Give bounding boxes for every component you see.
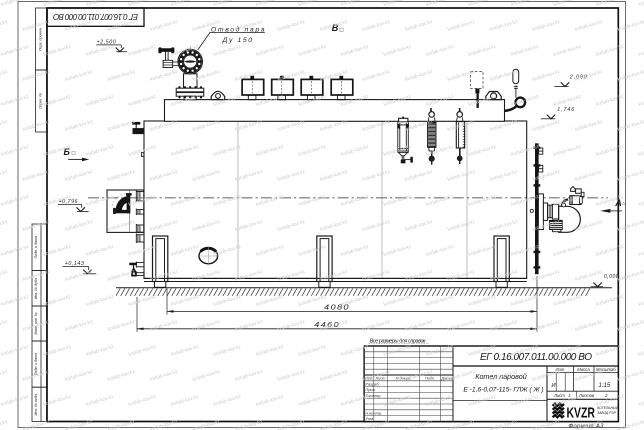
svg-text:Инв. № подл.: Инв. № подл.	[34, 393, 38, 415]
svg-text:kotlab-ksv.kz: kotlab-ksv.kz	[574, 19, 604, 33]
svg-text:1,746: 1,746	[557, 107, 574, 113]
svg-text:kotlab-ksv.kz: kotlab-ksv.kz	[595, 144, 625, 158]
svg-text:kotlab-ksv.kz: kotlab-ksv.kz	[468, 44, 498, 58]
svg-text:kotlab-ksv.kz: kotlab-ksv.kz	[532, 19, 562, 33]
svg-text:kotlab-ksv.kz: kotlab-ksv.kz	[234, 419, 264, 430]
svg-text:Перв. примен.: Перв. примен.	[39, 27, 43, 51]
svg-text:kotlab-ksv.kz: kotlab-ksv.kz	[128, 94, 158, 108]
svg-text:kotlab-ksv.kz: kotlab-ksv.kz	[319, 69, 349, 83]
svg-text:Ду 150: Ду 150	[222, 37, 253, 44]
svg-text:kotlab-ksv.kz: kotlab-ksv.kz	[362, 69, 392, 83]
svg-text:kotlab-ksv.kz: kotlab-ksv.kz	[213, 294, 243, 308]
svg-text:kotlab-ksv.kz: kotlab-ksv.kz	[340, 294, 370, 308]
svg-text:kotlab-ksv.kz: kotlab-ksv.kz	[128, 294, 158, 308]
svg-text:kotlab-ksv.kz: kotlab-ksv.kz	[298, 344, 328, 358]
svg-text:kotlab-ksv.kz: kotlab-ksv.kz	[0, 144, 30, 158]
svg-text:kotlab-ksv.kz: kotlab-ksv.kz	[447, 69, 477, 83]
svg-text:kotlab-ksv.kz: kotlab-ksv.kz	[277, 319, 307, 333]
svg-text:kotlab-ksv.kz: kotlab-ksv.kz	[425, 294, 455, 308]
svg-text:kotlab-ksv.kz: kotlab-ksv.kz	[0, 319, 9, 333]
svg-text:kotlab-ksv.kz: kotlab-ksv.kz	[192, 369, 222, 383]
svg-text:KVZR: KVZR	[567, 406, 596, 422]
svg-text:kotlab-ksv.kz: kotlab-ksv.kz	[340, 44, 370, 58]
svg-text:kotlab-ksv.kz: kotlab-ksv.kz	[107, 369, 137, 383]
svg-text:kotlab-ksv.kz: kotlab-ksv.kz	[298, 44, 328, 58]
svg-text:kotlab-ksv.kz: kotlab-ksv.kz	[277, 19, 307, 33]
svg-text:kotlab-ksv.kz: kotlab-ksv.kz	[362, 19, 392, 33]
svg-text:kotlab-ksv.kz: kotlab-ksv.kz	[617, 419, 644, 430]
svg-text:kotlab-ksv.kz: kotlab-ksv.kz	[64, 69, 94, 83]
svg-text:kotlab-ksv.kz: kotlab-ksv.kz	[0, 19, 9, 33]
svg-text:kotlab-ksv.kz: kotlab-ksv.kz	[64, 319, 94, 333]
svg-text:kotlab-ksv.kz: kotlab-ksv.kz	[510, 294, 540, 308]
svg-text:kotlab-ksv.kz: kotlab-ksv.kz	[64, 169, 94, 183]
svg-text:kotlab-ksv.kz: kotlab-ksv.kz	[0, 94, 30, 108]
svg-text:kotlab-ksv.kz: kotlab-ksv.kz	[107, 69, 137, 83]
svg-text:kotlab-ksv.kz: kotlab-ksv.kz	[85, 344, 115, 358]
svg-text:kotlab-ksv.kz: kotlab-ksv.kz	[574, 169, 604, 183]
svg-text:kotlab-ksv.kz: kotlab-ksv.kz	[0, 219, 9, 233]
svg-text:kotlab-ksv.kz: kotlab-ksv.kz	[234, 319, 264, 333]
svg-text:kotlab-ksv.kz: kotlab-ksv.kz	[383, 294, 413, 308]
svg-text:kotlab-ksv.kz: kotlab-ksv.kz	[107, 169, 137, 183]
svg-text:kotlab-ksv.kz: kotlab-ksv.kz	[574, 69, 604, 83]
svg-text:kotlab-ksv.kz: kotlab-ksv.kz	[617, 219, 644, 233]
svg-text:kotlab-ksv.kz: kotlab-ksv.kz	[213, 44, 243, 58]
svg-text:kotlab-ksv.kz: kotlab-ksv.kz	[638, 194, 644, 208]
svg-text:kotlab-ksv.kz: kotlab-ksv.kz	[85, 394, 115, 408]
svg-text:kotlab-ksv.kz: kotlab-ksv.kz	[107, 119, 137, 133]
svg-text:kotlab-ksv.kz: kotlab-ksv.kz	[0, 344, 30, 358]
svg-text:kotlab-ksv.kz: kotlab-ksv.kz	[64, 119, 94, 133]
svg-text:kotlab-ksv.kz: kotlab-ksv.kz	[638, 244, 644, 258]
svg-text:+2,500: +2,500	[97, 40, 116, 46]
svg-text:kotlab-ksv.kz: kotlab-ksv.kz	[0, 244, 30, 258]
svg-text:Разраб.: Разраб.	[365, 381, 379, 386]
svg-text:kotlab-ksv.kz: kotlab-ksv.kz	[277, 369, 307, 383]
svg-text:kotlab-ksv.kz: kotlab-ksv.kz	[638, 394, 644, 408]
svg-text:Масса: Масса	[577, 367, 590, 372]
svg-text:kotlab-ksv.kz: kotlab-ksv.kz	[255, 344, 285, 358]
svg-text:kotlab-ksv.kz: kotlab-ksv.kz	[553, 244, 583, 258]
svg-text:Н.контр.: Н.контр.	[365, 410, 382, 415]
svg-text:Подп.: Подп.	[425, 376, 435, 380]
svg-text:kotlab-ksv.kz: kotlab-ksv.kz	[617, 69, 644, 83]
svg-text:kotlab-ksv.kz: kotlab-ksv.kz	[107, 319, 137, 333]
svg-text:kotlab-ksv.kz: kotlab-ksv.kz	[255, 44, 285, 58]
svg-text:kotlab-ksv.kz: kotlab-ksv.kz	[128, 394, 158, 408]
svg-text:kotlab-ksv.kz: kotlab-ksv.kz	[85, 44, 115, 58]
svg-text:kotlab-ksv.kz: kotlab-ksv.kz	[0, 44, 30, 58]
svg-text:kotlab-ksv.kz: kotlab-ksv.kz	[255, 294, 285, 308]
svg-text:kotlab-ksv.kz: kotlab-ksv.kz	[319, 369, 349, 383]
svg-text:kotlab-ksv.kz: kotlab-ksv.kz	[298, 394, 328, 408]
svg-text:Пров.: Пров.	[365, 387, 376, 392]
svg-text:kotlab-ksv.kz: kotlab-ksv.kz	[617, 269, 644, 283]
svg-text:kotlab-ksv.kz: kotlab-ksv.kz	[64, 269, 94, 283]
svg-text:kotlab-ksv.kz: kotlab-ksv.kz	[383, 44, 413, 58]
svg-text:kotlab-ksv.kz: kotlab-ksv.kz	[362, 319, 392, 333]
svg-text:kotlab-ksv.kz: kotlab-ksv.kz	[170, 294, 200, 308]
svg-text:1:15: 1:15	[599, 383, 611, 389]
svg-text:kotlab-ksv.kz: kotlab-ksv.kz	[638, 0, 644, 8]
svg-text:kotlab-ksv.kz: kotlab-ksv.kz	[149, 69, 179, 83]
svg-text:kotlab-ksv.kz: kotlab-ksv.kz	[638, 344, 644, 358]
svg-text:kotlab-ksv.kz: kotlab-ksv.kz	[638, 294, 644, 308]
svg-text:kotlab-ksv.kz: kotlab-ksv.kz	[595, 294, 625, 308]
svg-text:kotlab-ksv.kz: kotlab-ksv.kz	[617, 169, 644, 183]
svg-text:kotlab-ksv.kz: kotlab-ksv.kz	[319, 419, 349, 430]
svg-text:kotlab-ksv.kz: kotlab-ksv.kz	[468, 294, 498, 308]
svg-text:kotlab-ksv.kz: kotlab-ksv.kz	[149, 369, 179, 383]
svg-text:kotlab-ksv.kz: kotlab-ksv.kz	[234, 69, 264, 83]
svg-text:kotlab-ksv.kz: kotlab-ksv.kz	[192, 319, 222, 333]
svg-text:kotlab-ksv.kz: kotlab-ksv.kz	[553, 294, 583, 308]
svg-text:kotlab-ksv.kz: kotlab-ksv.kz	[0, 269, 9, 283]
svg-text:kotlab-ksv.kz: kotlab-ksv.kz	[0, 294, 30, 308]
svg-text:kotlab-ksv.kz: kotlab-ksv.kz	[638, 94, 644, 108]
svg-text:kotlab-ksv.kz: kotlab-ksv.kz	[192, 419, 222, 430]
svg-text:kotlab-ksv.kz: kotlab-ksv.kz	[213, 344, 243, 358]
svg-text:kotlab-ksv.kz: kotlab-ksv.kz	[595, 244, 625, 258]
svg-text:kotlab-ksv.kz: kotlab-ksv.kz	[617, 119, 644, 133]
svg-text:kotlab-ksv.kz: kotlab-ksv.kz	[617, 319, 644, 333]
svg-text:kotlab-ksv.kz: kotlab-ksv.kz	[638, 44, 644, 58]
svg-text:kotlab-ksv.kz: kotlab-ksv.kz	[64, 369, 94, 383]
svg-text:kotlab-ksv.kz: kotlab-ksv.kz	[404, 319, 434, 333]
svg-text:kotlab-ksv.kz: kotlab-ksv.kz	[489, 19, 519, 33]
svg-text:kotlab-ksv.kz: kotlab-ksv.kz	[617, 19, 644, 33]
svg-text:kotlab-ksv.kz: kotlab-ksv.kz	[107, 419, 137, 430]
svg-text:kotlab-ksv.kz: kotlab-ksv.kz	[574, 119, 604, 133]
svg-text:ЕГ 0.16.007.011.00.000 ВО: ЕГ 0.16.007.011.00.000 ВО	[53, 12, 138, 21]
svg-text:Утв.: Утв.	[365, 416, 374, 421]
svg-text:Е -1,6-0,07-115- ГЛЖ ( Ж ): Е -1,6-0,07-115- ГЛЖ ( Ж )	[463, 386, 543, 393]
svg-text:kotlab-ksv.kz: kotlab-ksv.kz	[404, 69, 434, 83]
svg-text:kotlab-ksv.kz: kotlab-ksv.kz	[574, 319, 604, 333]
svg-text:kotlab-ksv.kz: kotlab-ksv.kz	[213, 394, 243, 408]
svg-text:kotlab-ksv.kz: kotlab-ksv.kz	[64, 219, 94, 233]
svg-text:Инв. № дубл.: Инв. № дубл.	[34, 277, 38, 299]
svg-text:kotlab-ksv.kz: kotlab-ksv.kz	[0, 419, 9, 430]
svg-text:kotlab-ksv.kz: kotlab-ksv.kz	[277, 419, 307, 430]
svg-text:kotlab-ksv.kz: kotlab-ksv.kz	[489, 319, 519, 333]
svg-text:kotlab-ksv.kz: kotlab-ksv.kz	[553, 94, 583, 108]
svg-text:kotlab-ksv.kz: kotlab-ksv.kz	[447, 19, 477, 33]
svg-text:kotlab-ksv.kz: kotlab-ksv.kz	[0, 369, 9, 383]
svg-text:kotlab-ksv.kz: kotlab-ksv.kz	[595, 44, 625, 58]
svg-text:kotlab-ksv.kz: kotlab-ksv.kz	[149, 319, 179, 333]
svg-text:kotlab-ksv.kz: kotlab-ksv.kz	[170, 344, 200, 358]
svg-text:ЕГ 0.16.007.011.00.000 ВО: ЕГ 0.16.007.011.00.000 ВО	[480, 352, 592, 363]
svg-text:kotlab-ksv.kz: kotlab-ksv.kz	[255, 394, 285, 408]
svg-text:kotlab-ksv.kz: kotlab-ksv.kz	[149, 19, 179, 33]
svg-text:Лист: Лист	[553, 393, 565, 398]
svg-text:kotlab-ksv.kz: kotlab-ksv.kz	[532, 319, 562, 333]
svg-text:kotlab-ksv.kz: kotlab-ksv.kz	[532, 69, 562, 83]
svg-text:kotlab-ksv.kz: kotlab-ksv.kz	[0, 194, 30, 208]
svg-text:kotlab-ksv.kz: kotlab-ksv.kz	[0, 169, 9, 183]
svg-text:kotlab-ksv.kz: kotlab-ksv.kz	[447, 319, 477, 333]
svg-text:kotlab-ksv.kz: kotlab-ksv.kz	[617, 369, 644, 383]
svg-text:kotlab-ksv.kz: kotlab-ksv.kz	[128, 44, 158, 58]
svg-text:+0,143: +0,143	[65, 261, 84, 267]
svg-text:kotlab-ksv.kz: kotlab-ksv.kz	[128, 344, 158, 358]
svg-text:kotlab-ksv.kz: kotlab-ksv.kz	[553, 144, 583, 158]
svg-text:kotlab-ksv.kz: kotlab-ksv.kz	[0, 69, 9, 83]
svg-text:kotlab-ksv.kz: kotlab-ksv.kz	[64, 419, 94, 430]
svg-text:Справ. №: Справ. №	[39, 93, 43, 109]
svg-text:kotlab-ksv.kz: kotlab-ksv.kz	[595, 94, 625, 108]
svg-text:Подп. и дата: Подп. и дата	[34, 236, 38, 259]
svg-text:kotlab-ksv.kz: kotlab-ksv.kz	[404, 19, 434, 33]
svg-text:kotlab-ksv.kz: kotlab-ksv.kz	[574, 269, 604, 283]
svg-text:kotlab-ksv.kz: kotlab-ksv.kz	[532, 119, 562, 133]
svg-text:kotlab-ksv.kz: kotlab-ksv.kz	[234, 369, 264, 383]
svg-text:kotlab-ksv.kz: kotlab-ksv.kz	[170, 394, 200, 408]
svg-text:kotlab-ksv.kz: kotlab-ksv.kz	[638, 144, 644, 158]
svg-text:kotlab-ksv.kz: kotlab-ksv.kz	[85, 294, 115, 308]
svg-text:ЗАВОД РЗР: ЗАВОД РЗР	[597, 411, 617, 415]
svg-text:kotlab-ksv.kz: kotlab-ksv.kz	[510, 44, 540, 58]
svg-text:kotlab-ksv.kz: kotlab-ksv.kz	[85, 144, 115, 158]
svg-text:kotlab-ksv.kz: kotlab-ksv.kz	[85, 244, 115, 258]
svg-text:kotlab-ksv.kz: kotlab-ksv.kz	[553, 44, 583, 58]
svg-text:kotlab-ksv.kz: kotlab-ksv.kz	[192, 19, 222, 33]
svg-text:kotlab-ksv.kz: kotlab-ksv.kz	[22, 419, 52, 430]
svg-text:kotlab-ksv.kz: kotlab-ksv.kz	[0, 119, 9, 133]
svg-text:kotlab-ksv.kz: kotlab-ksv.kz	[85, 94, 115, 108]
svg-text:kotlab-ksv.kz: kotlab-ksv.kz	[425, 44, 455, 58]
svg-text:kotlab-ksv.kz: kotlab-ksv.kz	[149, 419, 179, 430]
svg-text:kotlab-ksv.kz: kotlab-ksv.kz	[0, 394, 30, 408]
